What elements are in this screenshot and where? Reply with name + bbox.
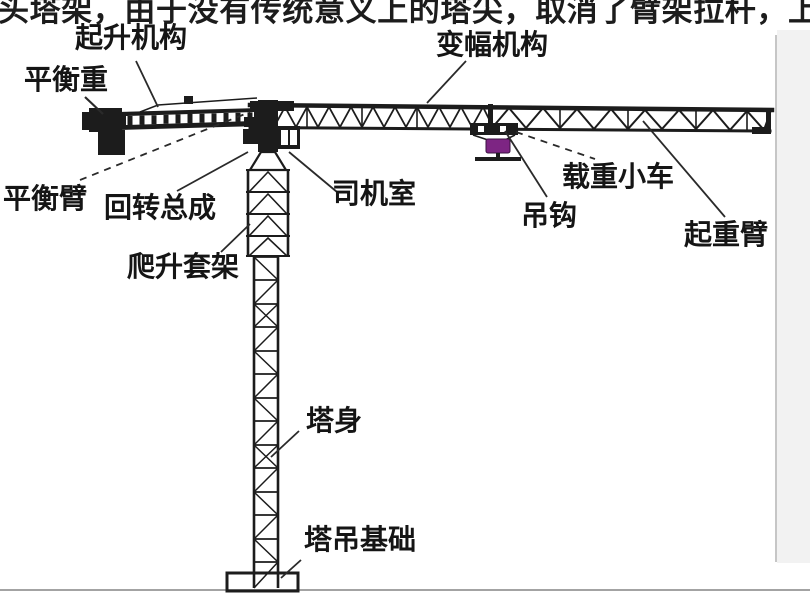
- crane-drawing: [0, 0, 810, 594]
- crane-structure-diagram: 头塔架，由于没有传统意义上的塔尖，取消了臂架拉杆，上: [0, 0, 810, 594]
- counter-jib: [118, 96, 258, 130]
- label-hoisting-mechanism: 起升机构: [75, 23, 187, 52]
- label-tower-body: 塔身: [306, 406, 362, 435]
- label-foundation: 塔吊基础: [304, 525, 416, 554]
- operator-cab: [276, 126, 300, 149]
- label-load-trolley: 载重小车: [562, 162, 674, 191]
- leader-slewing: [177, 152, 248, 191]
- hoisting-winch: [184, 96, 193, 104]
- leader-hoisting: [136, 61, 158, 107]
- hook-bar: [475, 157, 521, 161]
- leader-trolley: [516, 132, 595, 159]
- label-hook: 吊钩: [521, 201, 577, 230]
- climbing-frame: [246, 152, 290, 257]
- label-luffing-mechanism: 变幅机构: [436, 30, 548, 59]
- leader-cab: [289, 152, 337, 192]
- foundation-block: [227, 573, 298, 591]
- tower-mast: [254, 257, 278, 588]
- leader-lines: [80, 61, 725, 578]
- counterweight-blocks: [82, 108, 125, 155]
- label-operator-cab: 司机室: [332, 179, 416, 208]
- label-counter-jib: 平衡臂: [3, 184, 87, 213]
- leader-climbing-frame: [221, 224, 250, 252]
- label-climbing-frame: 爬升套架: [127, 252, 239, 281]
- load-trolley: [470, 123, 518, 135]
- leader-tower: [271, 431, 299, 457]
- label-jib: 起重臂: [684, 220, 768, 249]
- hook-assembly: [473, 135, 521, 161]
- label-slewing-assembly: 回转总成: [104, 193, 216, 222]
- leader-luffing: [427, 61, 466, 103]
- hook-block: [486, 139, 510, 153]
- label-counterweight: 平衡重: [24, 65, 108, 94]
